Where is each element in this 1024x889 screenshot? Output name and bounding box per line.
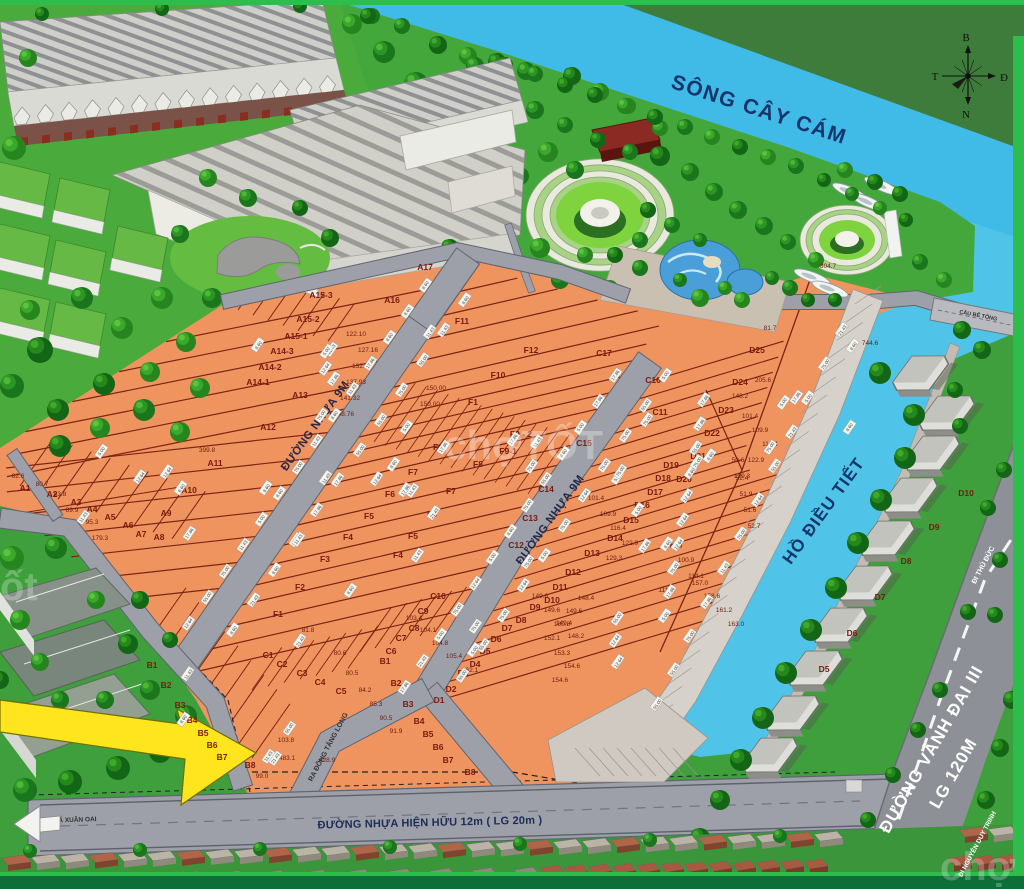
svg-text:D13: D13	[584, 548, 600, 558]
svg-text:A6: A6	[123, 520, 134, 530]
svg-text:D9: D9	[530, 602, 541, 612]
svg-text:101.4: 101.4	[588, 495, 605, 502]
svg-text:161.2: 161.2	[716, 607, 733, 614]
svg-text:C1: C1	[263, 650, 274, 660]
svg-text:103.8: 103.8	[278, 737, 295, 744]
svg-text:B1: B1	[380, 656, 391, 666]
svg-text:F5: F5	[408, 531, 418, 541]
svg-text:399.8: 399.8	[199, 447, 216, 454]
svg-text:157.0: 157.0	[692, 580, 709, 587]
svg-text:C17: C17	[596, 348, 612, 358]
svg-text:D10: D10	[958, 488, 974, 498]
svg-text:D6: D6	[491, 634, 502, 644]
svg-text:91.9: 91.9	[390, 728, 403, 735]
svg-text:95.3: 95.3	[86, 519, 99, 526]
svg-text:C6: C6	[386, 646, 397, 656]
svg-text:D12: D12	[565, 567, 581, 577]
svg-text:100.9: 100.9	[678, 557, 695, 564]
svg-text:C8: C8	[409, 623, 420, 633]
svg-text:154.6: 154.6	[552, 677, 569, 684]
svg-text:109.9: 109.9	[752, 427, 769, 434]
svg-text:D7: D7	[502, 623, 513, 633]
svg-text:F4: F4	[393, 550, 403, 560]
svg-text:D1: D1	[434, 695, 445, 705]
svg-text:T: T	[932, 71, 939, 83]
svg-text:52.7: 52.7	[748, 523, 761, 530]
svg-text:180.8: 180.8	[554, 621, 571, 628]
svg-text:148.2: 148.2	[732, 393, 749, 400]
svg-text:F12: F12	[524, 345, 539, 355]
svg-text:149.6: 149.6	[532, 593, 549, 600]
svg-text:148.2: 148.2	[568, 633, 585, 640]
svg-text:85.3: 85.3	[370, 701, 383, 708]
svg-text:F3: F3	[320, 554, 330, 564]
svg-text:A9: A9	[161, 508, 172, 518]
svg-text:B5: B5	[198, 728, 209, 738]
svg-text:C5: C5	[336, 686, 347, 696]
svg-text:D17: D17	[647, 487, 663, 497]
svg-text:83.8: 83.8	[54, 491, 67, 498]
svg-text:D24: D24	[732, 377, 748, 387]
svg-text:81.7: 81.7	[764, 325, 777, 332]
svg-text:205.6: 205.6	[755, 377, 772, 384]
svg-text:129.3: 129.3	[606, 555, 623, 562]
svg-text:D6: D6	[847, 628, 858, 638]
svg-text:A12: A12	[260, 422, 276, 432]
svg-text:A11: A11	[207, 458, 222, 468]
svg-text:D7: D7	[875, 592, 886, 602]
svg-text:122.10: 122.10	[346, 331, 366, 338]
svg-text:179.3: 179.3	[92, 535, 109, 542]
svg-text:127.16: 127.16	[358, 347, 378, 354]
svg-text:80.7: 80.7	[36, 481, 49, 488]
svg-text:304.7: 304.7	[820, 263, 837, 270]
svg-text:163.0: 163.0	[728, 621, 745, 628]
svg-text:F7: F7	[446, 486, 456, 496]
svg-text:101.4: 101.4	[742, 413, 759, 420]
svg-text:116.4: 116.4	[610, 525, 626, 532]
svg-text:A13: A13	[292, 390, 308, 400]
svg-text:D23: D23	[718, 405, 734, 415]
svg-text:A15-3: A15-3	[309, 290, 332, 300]
svg-text:89.9: 89.9	[66, 507, 79, 514]
svg-text:B6: B6	[207, 740, 218, 750]
svg-text:50.6: 50.6	[732, 457, 745, 464]
svg-text:B7: B7	[217, 752, 228, 762]
svg-text:chợ: chợ	[940, 845, 1016, 889]
svg-text:B7: B7	[443, 755, 454, 765]
svg-text:80.5: 80.5	[346, 670, 359, 677]
svg-text:154.6: 154.6	[564, 663, 581, 670]
svg-text:109.9: 109.9	[600, 511, 617, 518]
svg-text:51.9: 51.9	[740, 491, 753, 498]
svg-text:A1: A1	[20, 483, 31, 493]
svg-text:153.3: 153.3	[554, 650, 571, 657]
svg-text:B2: B2	[391, 678, 402, 688]
svg-text:150.00: 150.00	[420, 401, 440, 408]
svg-text:744.6: 744.6	[862, 340, 879, 347]
svg-text:149.6: 149.6	[566, 608, 583, 615]
svg-text:B3: B3	[403, 699, 414, 709]
svg-text:122.9: 122.9	[622, 540, 639, 547]
svg-text:84.2: 84.2	[359, 687, 372, 694]
svg-text:114.1: 114.1	[688, 573, 704, 580]
svg-text:F11: F11	[455, 316, 469, 326]
svg-text:D19: D19	[663, 460, 679, 470]
svg-text:D8: D8	[901, 556, 912, 566]
svg-text:F10: F10	[491, 370, 506, 380]
svg-text:F1: F1	[468, 397, 478, 407]
svg-text:D5: D5	[819, 664, 830, 674]
svg-text:chợTỐT: chợTỐT	[444, 422, 603, 468]
svg-text:122.9: 122.9	[748, 457, 765, 464]
svg-text:81.8: 81.8	[302, 627, 315, 634]
svg-text:D8: D8	[516, 615, 527, 625]
svg-text:D11: D11	[552, 582, 567, 592]
svg-text:C11: C11	[652, 407, 667, 417]
svg-text:152.1: 152.1	[544, 635, 561, 642]
svg-text:B8: B8	[465, 767, 476, 777]
svg-text:A14-1: A14-1	[246, 377, 269, 387]
svg-text:Đ: Đ	[1000, 72, 1008, 84]
svg-text:D22: D22	[704, 428, 720, 438]
svg-text:ốt: ốt	[0, 565, 38, 609]
svg-text:C10: C10	[430, 591, 446, 601]
svg-text:A7: A7	[136, 529, 147, 539]
svg-text:F4: F4	[343, 532, 353, 542]
svg-text:D25: D25	[749, 345, 765, 355]
svg-text:C13: C13	[522, 513, 538, 523]
svg-text:B8: B8	[245, 760, 256, 770]
svg-text:B6: B6	[433, 742, 444, 752]
svg-text:51.6: 51.6	[744, 507, 757, 514]
svg-text:99.0: 99.0	[256, 773, 269, 780]
svg-text:A17: A17	[417, 262, 433, 272]
svg-text:B3: B3	[175, 700, 186, 710]
svg-text:F7: F7	[408, 467, 418, 477]
svg-text:A5: A5	[105, 512, 116, 522]
svg-text:A14-2: A14-2	[258, 362, 281, 372]
svg-text:149.6: 149.6	[544, 607, 561, 614]
svg-text:D2: D2	[446, 684, 457, 694]
svg-text:B: B	[962, 32, 969, 44]
svg-text:52.4: 52.4	[736, 475, 749, 482]
svg-text:428.9: 428.9	[319, 757, 336, 764]
svg-text:82.6: 82.6	[12, 473, 25, 480]
svg-text:D9: D9	[929, 522, 940, 532]
svg-text:B4: B4	[414, 716, 425, 726]
svg-text:C4: C4	[315, 677, 326, 687]
svg-text:A15-2: A15-2	[296, 314, 319, 324]
svg-text:C3: C3	[297, 668, 308, 678]
svg-text:B1: B1	[147, 660, 158, 670]
svg-text:C16: C16	[645, 375, 661, 385]
svg-text:A3: A3	[71, 497, 82, 507]
svg-text:F6: F6	[385, 489, 395, 499]
svg-text:B2: B2	[161, 680, 172, 690]
svg-text:A15-1: A15-1	[284, 331, 307, 341]
svg-text:103.4: 103.4	[406, 615, 423, 622]
svg-text:B5: B5	[423, 729, 434, 739]
svg-text:F2: F2	[295, 582, 305, 592]
svg-text:90.5: 90.5	[380, 715, 393, 722]
svg-text:D14: D14	[607, 533, 623, 543]
svg-text:F5: F5	[364, 511, 374, 521]
svg-text:80.6: 80.6	[334, 650, 347, 657]
svg-text:105.4: 105.4	[446, 653, 463, 660]
svg-text:F1: F1	[273, 609, 283, 619]
svg-text:C14: C14	[538, 484, 554, 494]
svg-text:A14-3: A14-3	[270, 346, 293, 356]
svg-text:C7: C7	[396, 633, 407, 643]
svg-text:A16: A16	[384, 295, 400, 305]
svg-text:C2: C2	[277, 659, 288, 669]
svg-text:150.00: 150.00	[426, 385, 446, 392]
svg-text:C12: C12	[508, 540, 524, 550]
svg-text:N: N	[962, 109, 970, 121]
svg-text:D18: D18	[655, 473, 671, 483]
svg-text:104.1: 104.1	[420, 627, 437, 634]
svg-text:A8: A8	[154, 532, 165, 542]
svg-text:148.4: 148.4	[578, 595, 595, 602]
